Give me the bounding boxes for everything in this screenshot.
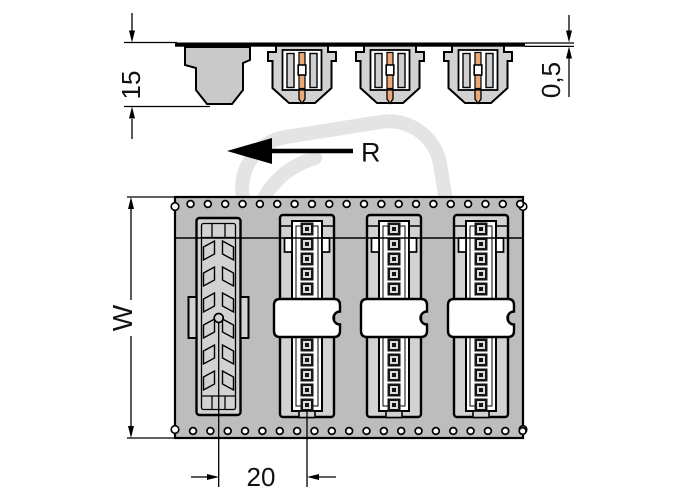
sprocket-hole (450, 428, 457, 435)
dim-width-label: W (107, 304, 138, 331)
sprocket-hole (242, 428, 249, 435)
sprocket-hole (309, 201, 316, 208)
sprocket-hole (482, 201, 489, 208)
sprocket-hole (291, 201, 298, 208)
sprocket-hole (395, 201, 402, 208)
sprocket-hole (204, 201, 211, 208)
dim-thickness-label: 0,5 (536, 62, 566, 98)
connector-front-view (444, 45, 512, 104)
sprocket-hole (380, 428, 387, 435)
sprocket-hole (465, 201, 472, 208)
connector-side-profile (185, 47, 250, 104)
sprocket-hole (346, 428, 353, 435)
direction-label: R (361, 137, 381, 167)
sprocket-hole (343, 201, 350, 208)
side-view: 15 0,5 (116, 13, 574, 139)
sprocket-hole (361, 201, 368, 208)
sprocket-hole (447, 201, 454, 208)
connector-top-face-view (274, 215, 340, 418)
connector-front-view (356, 45, 424, 104)
sprocket-hole (328, 428, 335, 435)
sprocket-hole (259, 428, 266, 435)
dimension-tape-width: W (107, 197, 175, 438)
sprocket-hole (239, 201, 246, 208)
sprocket-hole (413, 201, 420, 208)
sprocket-hole (274, 201, 281, 208)
sprocket-hole (502, 428, 509, 435)
connector-top-face-view (448, 215, 514, 418)
drawing-canvas: 15 0,5 R (0, 0, 697, 496)
connector-front-view (268, 45, 336, 104)
sprocket-hole (207, 428, 214, 435)
sprocket-hole (222, 201, 229, 208)
sprocket-hole (398, 428, 405, 435)
sprocket-hole (519, 428, 526, 435)
sprocket-hole (363, 428, 370, 435)
sprocket-hole (433, 428, 440, 435)
sprocket-hole (276, 428, 283, 435)
center-hole (214, 314, 223, 323)
sprocket-hole (187, 201, 194, 208)
sprocket-hole (294, 428, 301, 435)
sprocket-hole (190, 428, 197, 435)
sprocket-hole (257, 201, 264, 208)
sprocket-hole (311, 428, 318, 435)
sprocket-hole (430, 201, 437, 208)
tape-plan-view (171, 197, 527, 438)
sprocket-hole (326, 201, 333, 208)
sprocket-hole (378, 201, 385, 208)
technical-drawing: 15 0,5 R (0, 0, 697, 496)
sprocket-hole (485, 428, 492, 435)
sprocket-hole (467, 428, 474, 435)
carrier-tape-edge (175, 43, 525, 47)
connector-top-face-view (361, 215, 427, 418)
dim-height-label: 15 (116, 71, 146, 100)
sprocket-hole (517, 201, 524, 208)
dim-pitch-label: 20 (247, 462, 276, 492)
sprocket-hole (499, 201, 506, 208)
sprocket-hole (415, 428, 422, 435)
dimension-tape-thickness: 0,5 (536, 15, 572, 98)
sprocket-hole (224, 428, 231, 435)
